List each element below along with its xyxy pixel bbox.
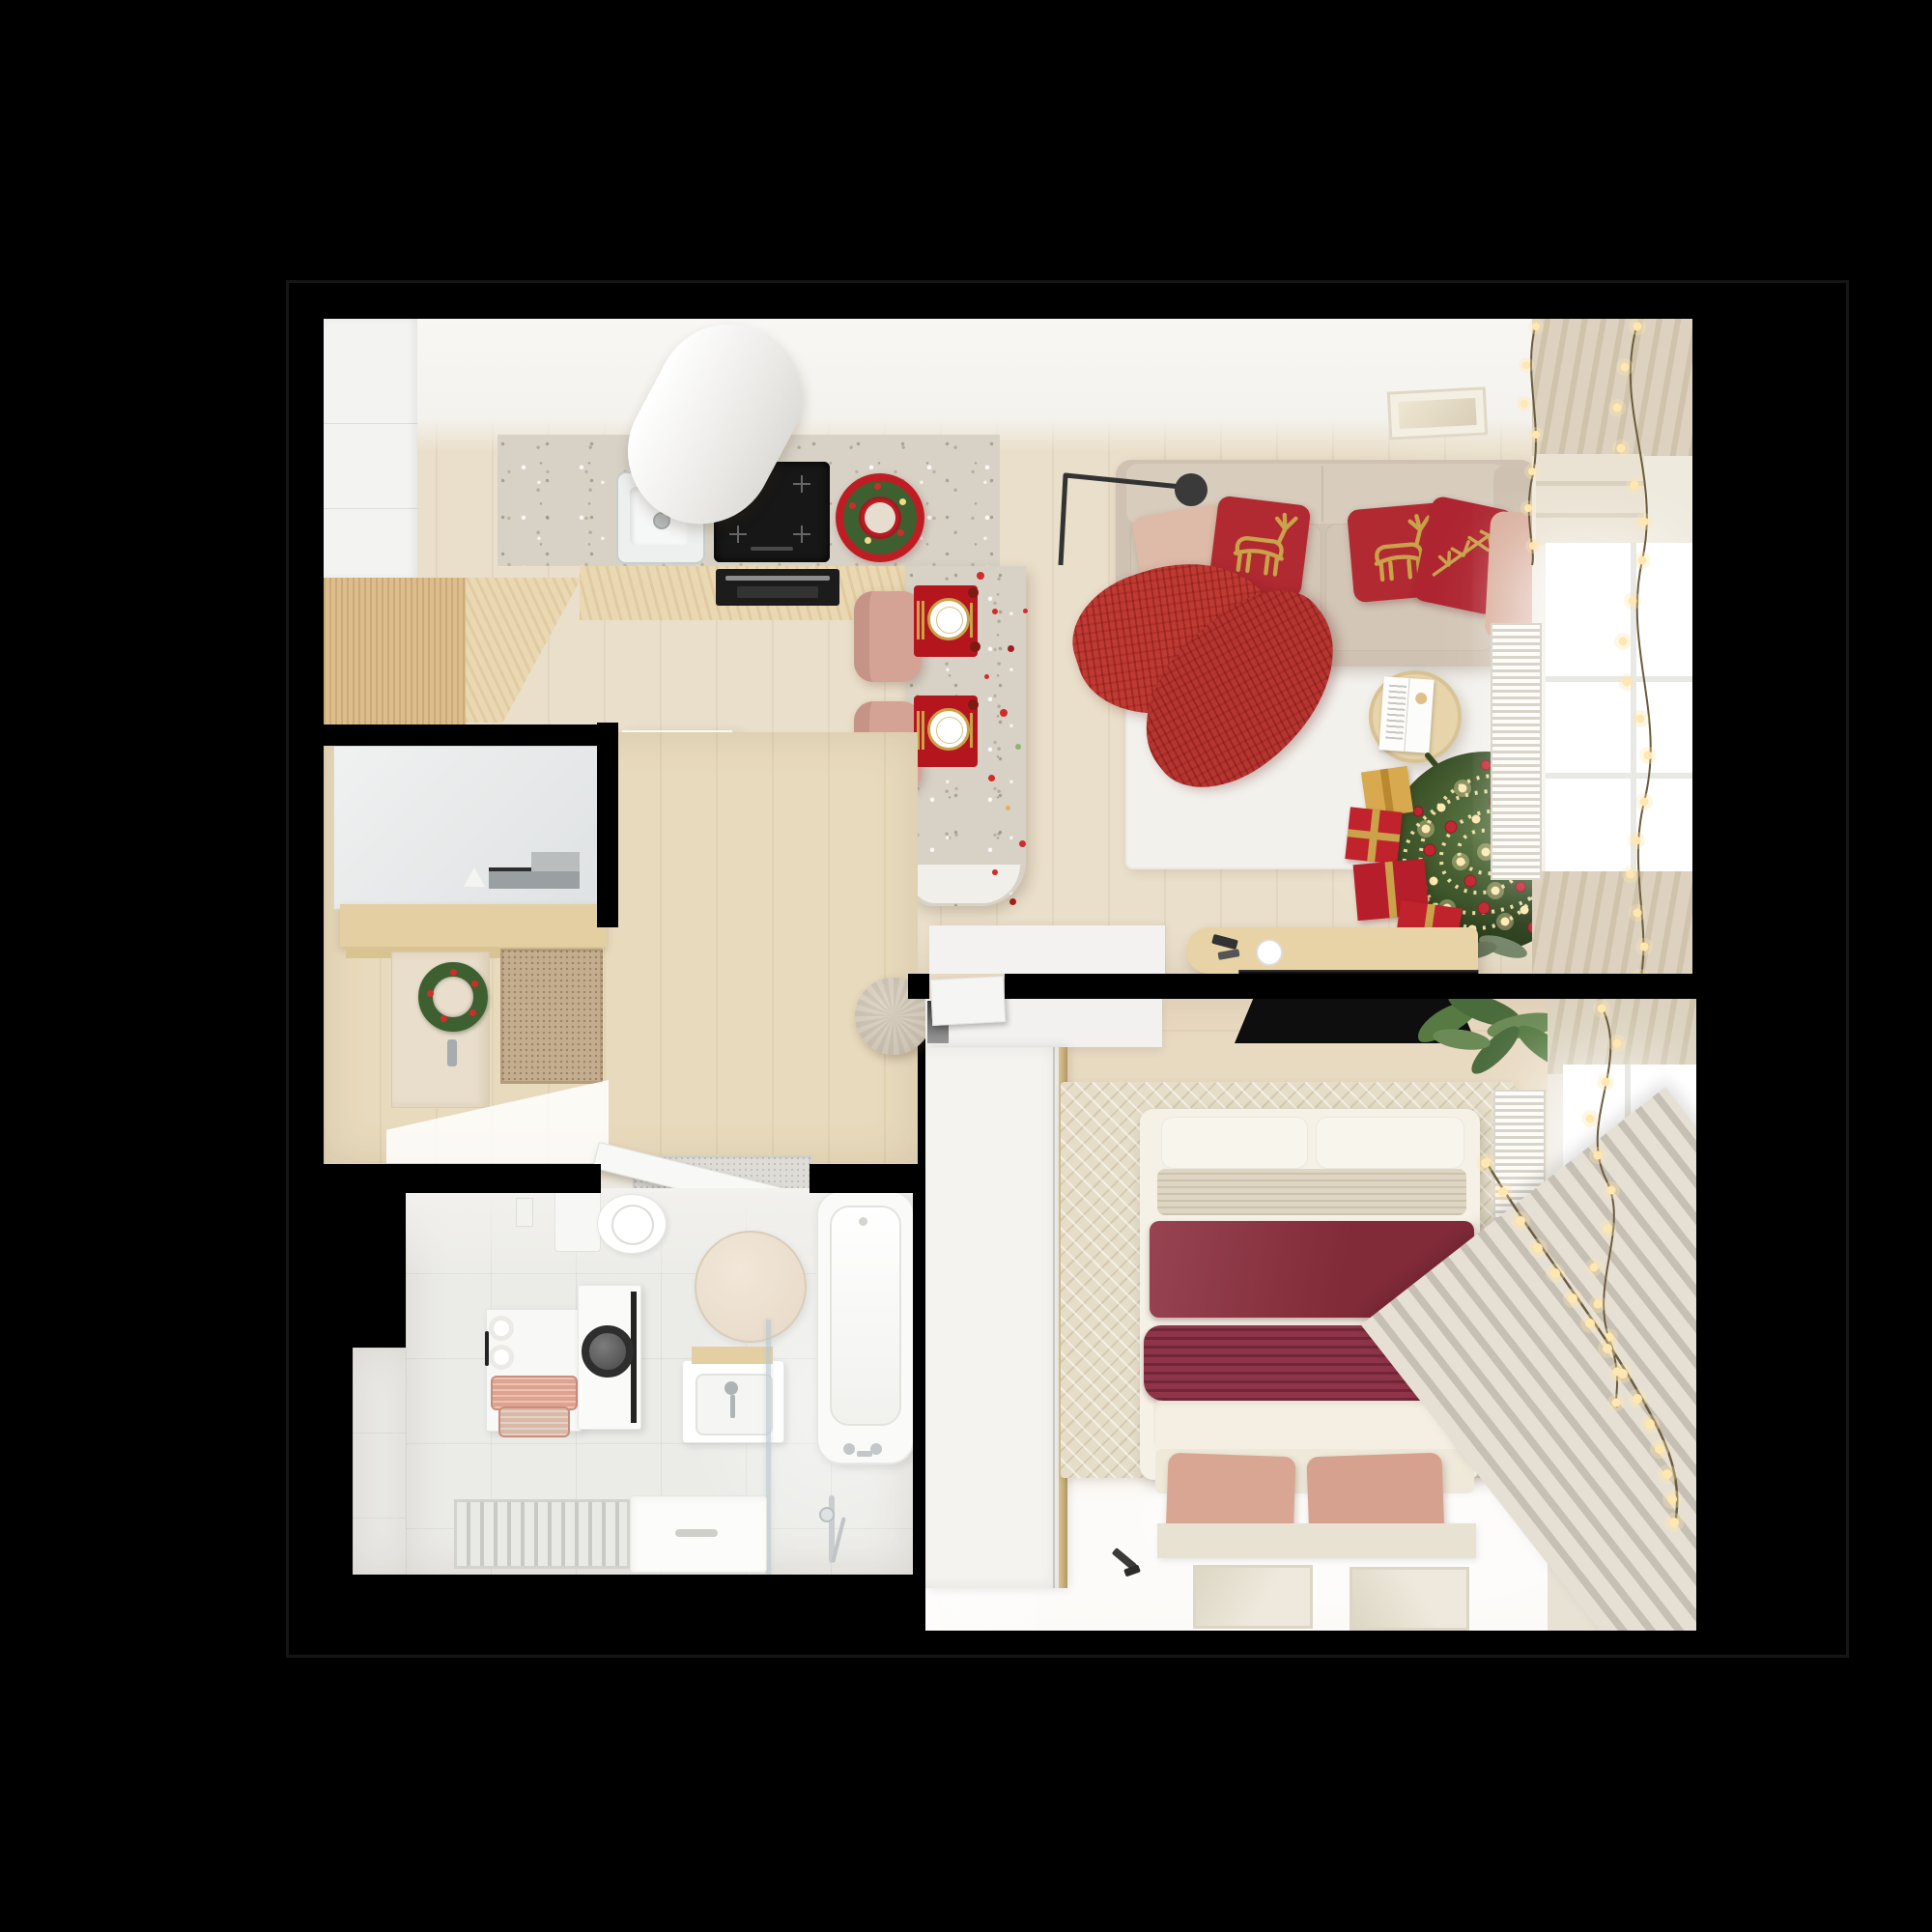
basin-wood-top [692,1347,773,1364]
basin-faucet-spout [730,1395,735,1418]
dinner-plate [927,598,970,640]
dinner-plate [927,708,970,751]
towel-radiator [454,1499,630,1569]
gift-box-red [1345,807,1402,864]
wreath-berry [450,969,457,976]
confetti [977,572,984,580]
ribbon [1380,769,1395,816]
remote-control [1211,934,1238,950]
wreath-berry [440,1015,447,1022]
wall-socket [516,1198,533,1227]
wall-tv-stub [908,974,929,999]
built-in-oven [716,569,839,606]
wreath-berry [471,980,478,987]
confetti [1006,806,1010,810]
wall-art-frame [1193,1565,1313,1629]
socket-plate [1256,939,1283,966]
gold-cutlery [970,713,973,748]
gingerbread [970,641,980,652]
wreath-berry [865,537,871,544]
red-placemat [914,585,978,657]
door-wreath [418,962,488,1032]
vent-slot [1398,398,1476,429]
white-sideboard [929,925,1165,974]
round-mirror [695,1231,807,1343]
wreath-berry [874,483,881,490]
bathtub [816,1190,913,1464]
confetti [992,609,998,614]
confetti [1019,840,1026,847]
bed-pillow [1316,1117,1464,1169]
toilet-bowl [597,1194,667,1254]
washing-machine [578,1285,641,1430]
wall-hall-bottom-left [324,1164,601,1193]
coir-doormat [500,949,603,1084]
wreath-berry [899,498,906,505]
burner-mark [793,475,810,493]
toilet-paper-roll [489,1345,514,1370]
burner-mark [729,526,747,543]
wall-tv [1005,974,1696,999]
gold-cutlery [917,601,920,639]
duvet-foot-fold [1153,1401,1472,1449]
room-hallway [324,732,918,1164]
sliding-wardrobe [925,1047,1065,1588]
bar-chair [854,591,922,682]
counter-wreath-plate [836,473,924,562]
oak-counter-wedge [466,578,582,723]
confetti [988,775,995,781]
cabinet-seam [324,423,417,424]
gold-cutlery [970,603,973,638]
toilet-tank [554,1190,601,1252]
tall-cabinets [324,319,417,580]
ribbon [1384,862,1397,918]
washer-door [582,1325,634,1378]
toilet-paper-roll [489,1316,514,1341]
red-placemat [914,696,978,767]
door-handle [447,1039,457,1066]
wall-art-frame [1350,1567,1469,1631]
bed-pillow [1161,1117,1308,1169]
bench-platform [1157,1523,1476,1558]
burner-mark [793,526,810,543]
gold-cutlery [922,711,924,750]
wreath-berry [849,502,856,509]
gold-cutlery [922,601,924,639]
plate-inner-ring [936,607,963,634]
radiator [1491,623,1542,880]
oven-handle [725,576,830,581]
wall-hall-bottom-right [810,1164,918,1193]
remote-control [1217,949,1239,960]
floor-plan-canvas [0,0,1932,1932]
paper-holder [485,1331,489,1366]
confetti [1009,898,1016,905]
cabinet-seam [324,508,417,509]
confetti [1008,645,1014,652]
wall-hall-top [324,724,601,746]
tub-interior [830,1206,901,1426]
oven-glass [737,586,818,598]
string-lights-icon [1584,319,1692,974]
gingerbread [968,587,979,598]
speaker-box [531,852,580,871]
gingerbread [968,699,979,710]
confetti [1015,744,1021,750]
tub-spout [857,1451,872,1457]
pink-basket [491,1376,578,1410]
confetti [984,674,989,679]
wreath-berry [897,529,904,536]
magazine-text [1385,685,1406,740]
wreath-berry [469,1009,476,1016]
cooktop-controls [751,547,793,551]
tub-tap-handle [843,1443,855,1455]
wreath-center [865,502,895,533]
room-bedroom [925,997,1696,1631]
coffee-cup [1415,693,1428,705]
ceiling-vent [1387,386,1488,440]
toilet-seat-ring [611,1205,654,1245]
floor-lamp-icon [1043,444,1217,580]
open-bedroom-door [930,976,1006,1026]
pink-basket [498,1406,570,1437]
confetti [1000,709,1008,717]
confetti [1023,609,1028,613]
room-bathroom-notch [353,1348,411,1575]
shower-tray [630,1495,767,1573]
wardrobe-seam [1053,1047,1055,1588]
hand-shower-head [819,1507,835,1522]
tub-overflow [859,1217,867,1226]
plate-inner-ring [936,717,963,744]
floor-drain [675,1529,718,1537]
knit-band [1157,1169,1466,1215]
wall-stub-kitchen [597,723,618,927]
room-bathroom [406,1188,913,1575]
string-lights-icon [1507,319,1565,570]
open-magazine [1378,676,1434,753]
console-shelf [340,904,607,947]
basin-faucet [724,1381,738,1395]
sofa-back-seam [1321,466,1323,522]
string-lights-icon [1466,1142,1696,1586]
wreath-berry [427,990,434,997]
tv-console [1186,927,1478,974]
oak-cabinet-block [324,578,466,729]
confetti [992,869,998,875]
